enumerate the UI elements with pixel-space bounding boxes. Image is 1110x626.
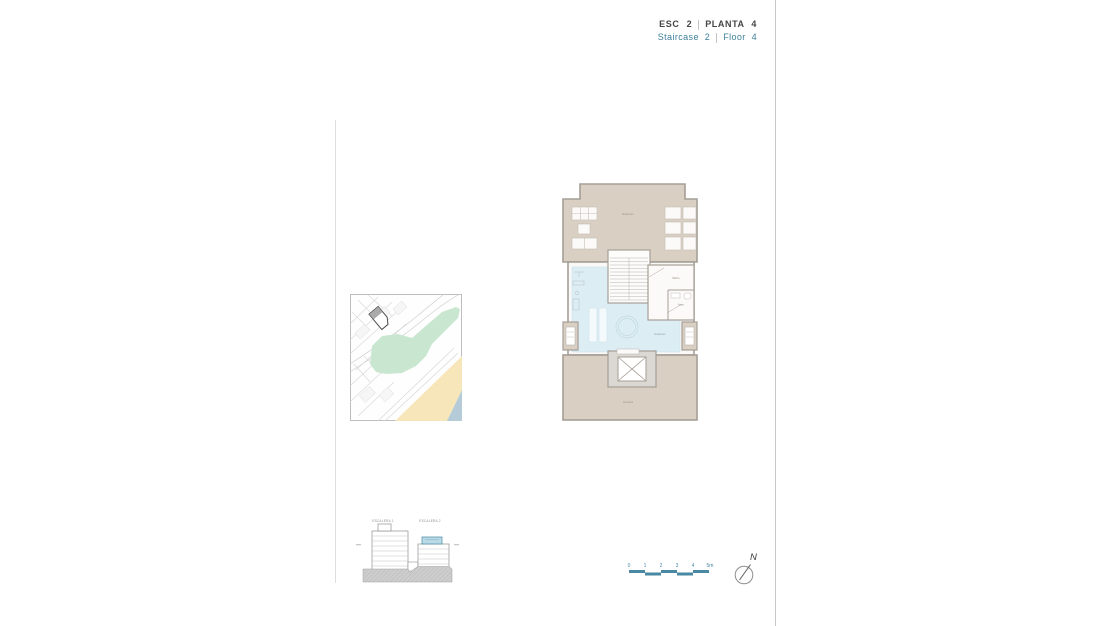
right-building-label: ESCALERA 2: [419, 519, 441, 523]
scale-tick-5m: 5m: [707, 563, 714, 569]
bathroom-label: Baño: [672, 276, 679, 280]
page-edge-line: [775, 0, 776, 626]
bottom-terrace-label: Terraza: [623, 400, 633, 404]
scale-tick-2: 2: [660, 563, 663, 569]
bathroom: Baño Aseo: [648, 265, 694, 320]
plan-sheet: ESC 2 PLANTA 4 Staircase 2 Floor 4: [0, 0, 1110, 626]
terrace-skylights-right: [665, 207, 696, 250]
sheet-header: ESC 2 PLANTA 4 Staircase 2 Floor 4: [658, 19, 757, 43]
esc-label: ESC 2: [659, 19, 692, 30]
scale-tick-0: 0: [628, 563, 631, 569]
alcove-left: [563, 322, 578, 350]
highlighted-floor: [422, 537, 442, 544]
floor-plan: Solarium Solarium: [560, 180, 700, 422]
left-building-label: ESCALERA 1: [372, 519, 394, 523]
header-line-en: Staircase 2 Floor 4: [658, 32, 757, 43]
divider-line: [335, 120, 336, 583]
level-mark-right: [454, 544, 459, 545]
level-mark-left: [356, 544, 361, 545]
toilet-label: Aseo: [678, 303, 685, 307]
scale-tick-4: 4: [692, 563, 695, 569]
alcove-right: [682, 322, 697, 350]
staircase: [608, 250, 650, 303]
compass-circle: [735, 566, 753, 584]
header-separator-2: [716, 33, 717, 43]
scale-tick-3: 3: [676, 563, 679, 569]
staircase-label: Staircase 2: [658, 32, 710, 43]
site-map: [350, 294, 462, 421]
floor-label: Floor 4: [723, 32, 757, 43]
ground-section: [363, 567, 452, 583]
north-label: N: [750, 552, 757, 563]
planta-label: PLANTA 4: [705, 19, 757, 30]
north-compass: N: [728, 546, 768, 592]
header-separator: [698, 20, 699, 30]
building-elevation: ESCALERA 1 ESCALERA 2: [355, 515, 460, 585]
header-line-es: ESC 2 PLANTA 4: [658, 19, 757, 30]
solarium-label: Solarium: [654, 332, 666, 336]
elevator: [608, 349, 656, 387]
top-terrace-label: Solarium: [622, 212, 634, 216]
scale-bar: 0 1 2 3 4 5m: [625, 561, 717, 579]
left-building: [372, 524, 408, 571]
scale-segments: [629, 570, 709, 576]
scale-tick-1: 1: [644, 563, 647, 569]
